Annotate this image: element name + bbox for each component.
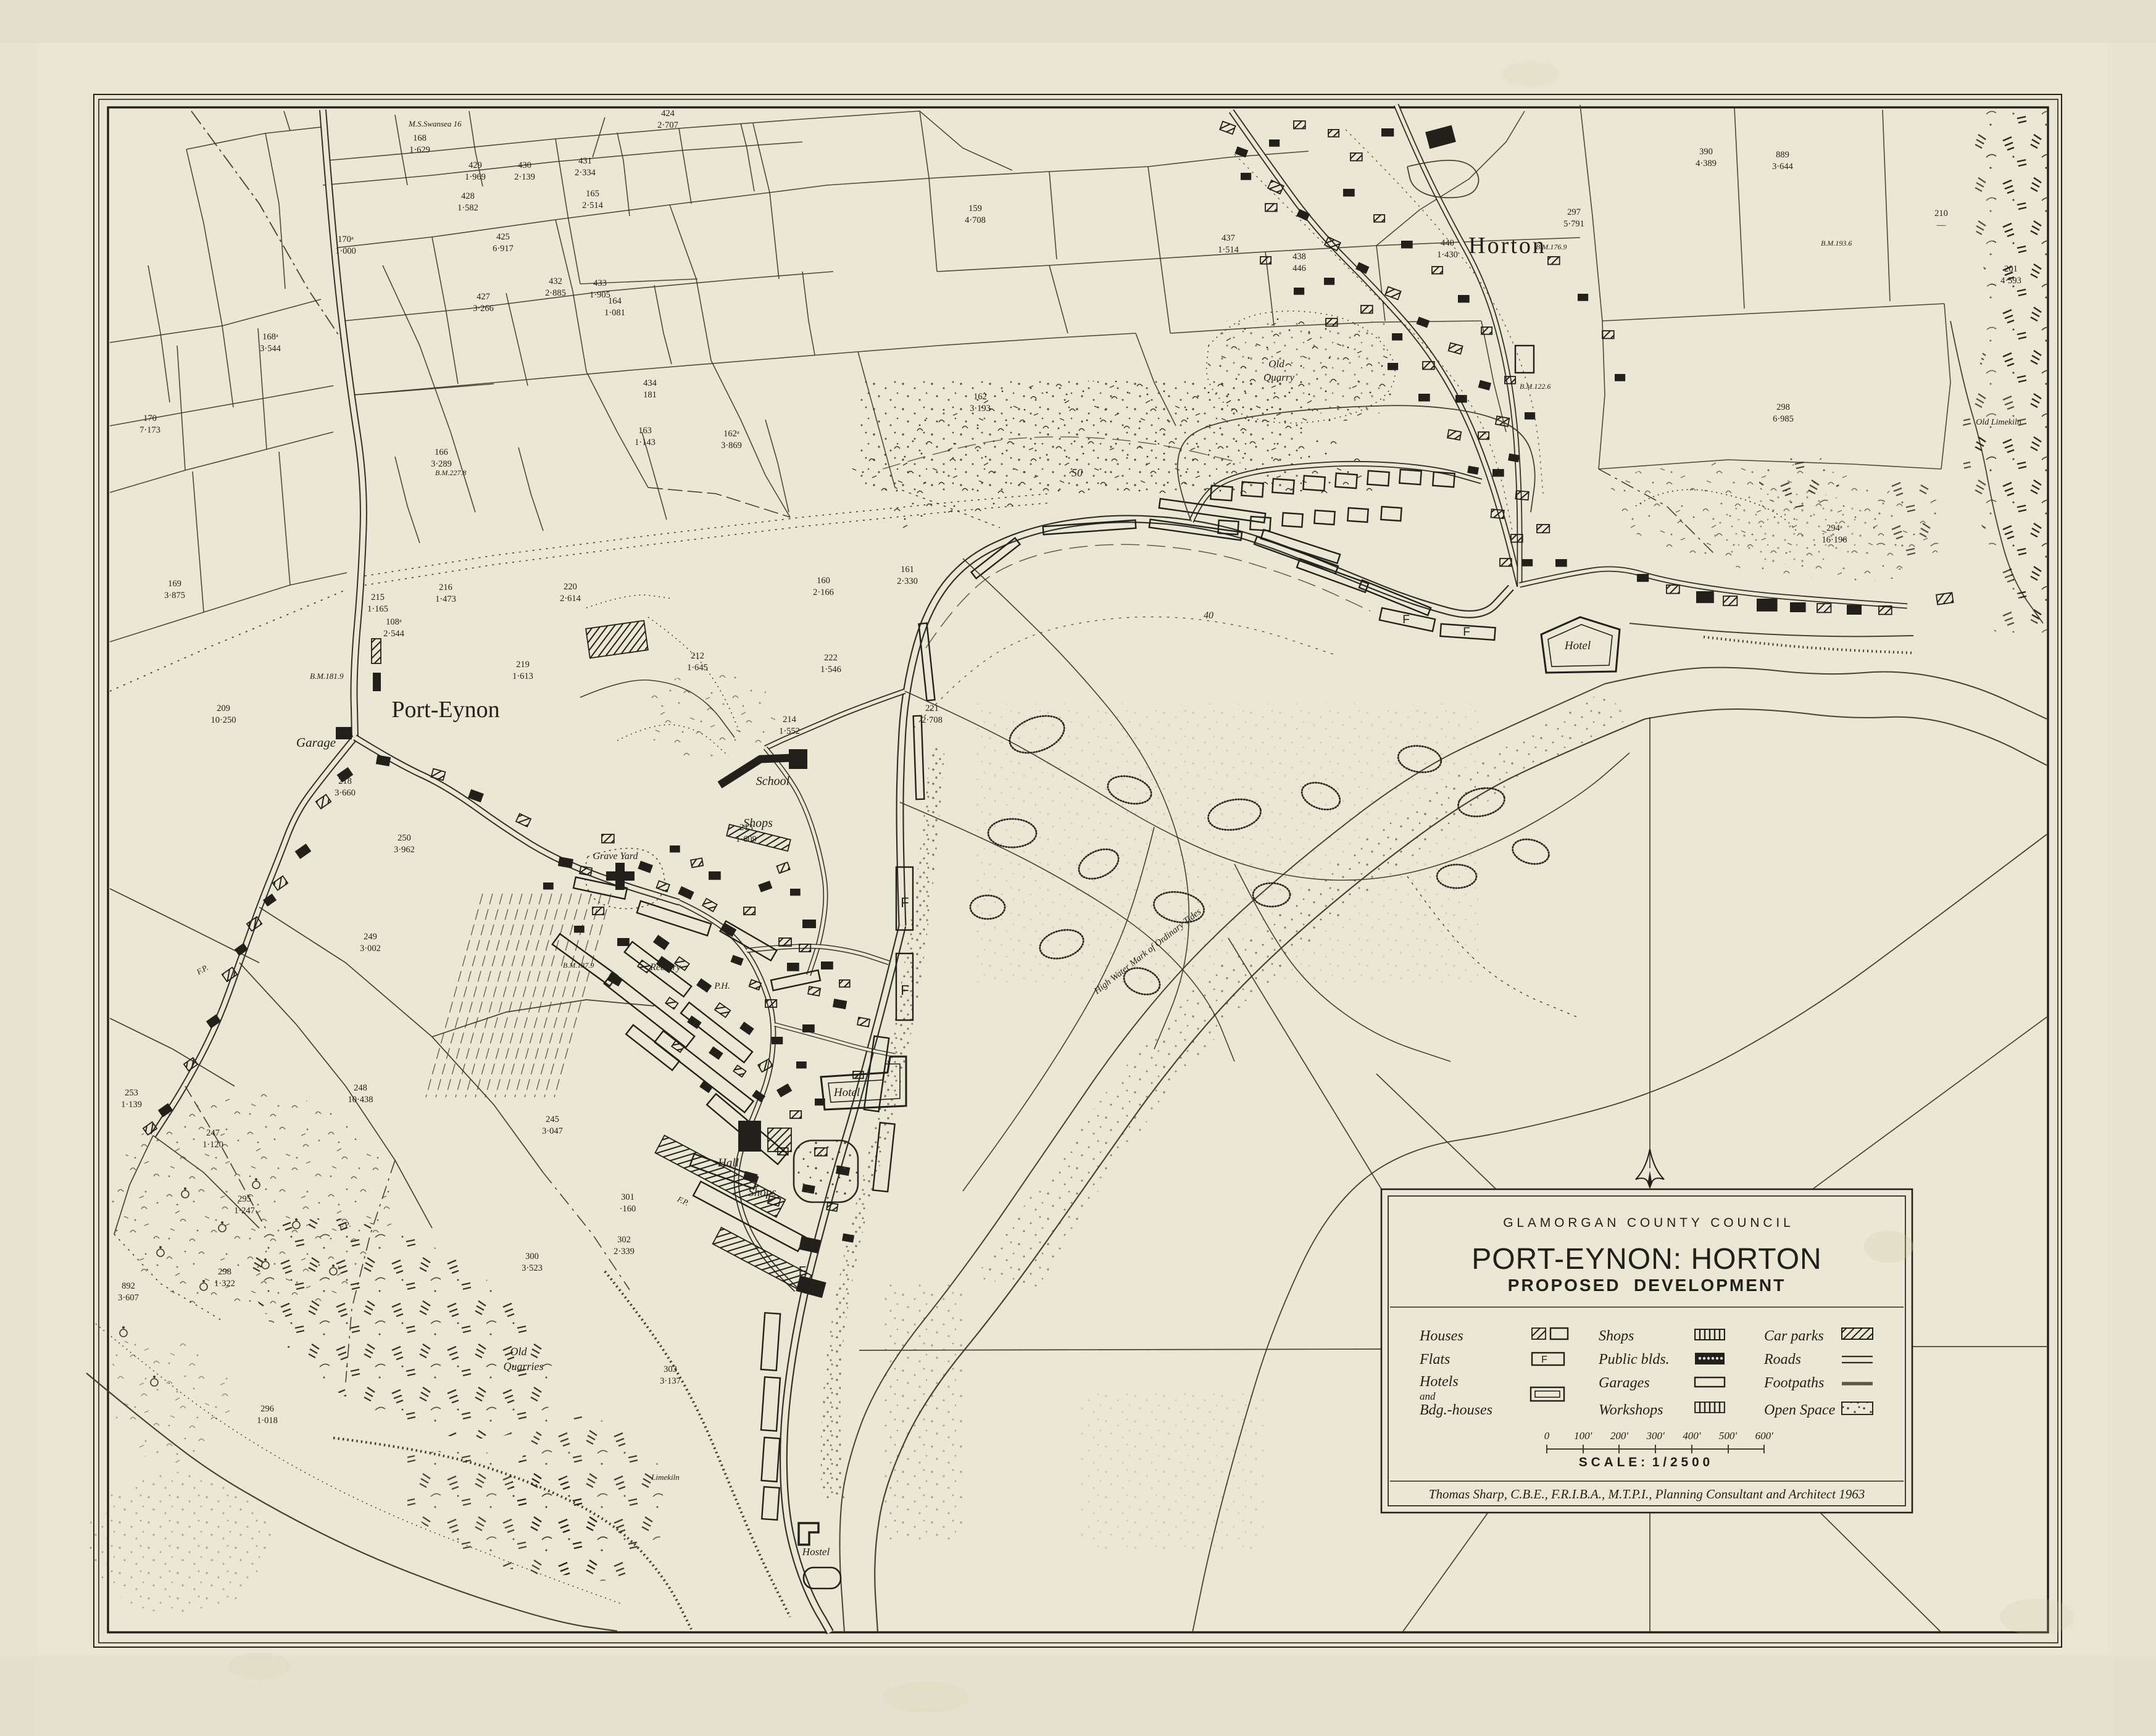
svg-text:B.M.227.8: B.M.227.8 <box>435 468 466 477</box>
svg-text:Workshops: Workshops <box>1599 1402 1663 1418</box>
svg-text:Quarry: Quarry <box>1263 372 1295 383</box>
svg-text:162: 162 <box>973 392 987 402</box>
svg-text:2·166: 2·166 <box>813 588 834 597</box>
svg-text:6·917: 6·917 <box>493 244 514 254</box>
svg-text:161: 161 <box>901 565 914 575</box>
svg-text:Car parks: Car parks <box>1764 1328 1824 1344</box>
svg-text:3·047: 3·047 <box>542 1126 563 1136</box>
svg-text:168: 168 <box>413 133 427 143</box>
svg-text:216: 216 <box>439 583 452 592</box>
svg-text:10·438: 10·438 <box>348 1095 373 1105</box>
svg-text:170ᵃ: 170ᵃ <box>338 235 354 244</box>
svg-text:3·544: 3·544 <box>260 344 281 354</box>
svg-text:F: F <box>1463 626 1470 639</box>
svg-text:1·609: 1·609 <box>736 834 757 844</box>
svg-text:424: 424 <box>661 109 675 118</box>
svg-text:Quarries: Quarries <box>503 1360 543 1373</box>
svg-text:3·266: 3·266 <box>473 304 494 314</box>
svg-text:Horton: Horton <box>1468 233 1546 259</box>
svg-text:Hotel: Hotel <box>833 1086 860 1099</box>
svg-text:P.H.: P.H. <box>714 981 730 991</box>
svg-text:2·139: 2·139 <box>514 172 535 182</box>
svg-text:2·514: 2·514 <box>582 201 604 210</box>
svg-text:Thomas Sharp, C.B.E., F.R.I.: Thomas Sharp, C.B.E., F.R.I.B.A., M.T.P.… <box>1429 1487 1865 1501</box>
svg-text:434: 434 <box>643 378 657 388</box>
svg-text:437: 437 <box>1222 233 1235 243</box>
svg-text:201: 201 <box>2004 264 2018 274</box>
svg-text:1·430: 1·430 <box>1437 250 1458 260</box>
svg-text:165: 165 <box>586 189 599 199</box>
svg-text:1·143: 1·143 <box>635 438 656 447</box>
svg-text:3·523: 3·523 <box>522 1263 543 1273</box>
svg-text:10·250: 10·250 <box>210 715 236 725</box>
svg-text:1·905: 1·905 <box>589 290 610 300</box>
svg-text:220: 220 <box>564 582 577 592</box>
svg-text:3·869: 3·869 <box>721 441 742 451</box>
svg-text:298: 298 <box>1776 402 1790 412</box>
svg-text:294ᵃ: 294ᵃ <box>1826 523 1842 533</box>
svg-text:Old Limekiln: Old Limekiln <box>1976 418 2021 427</box>
svg-text:Houses: Houses <box>1419 1328 1463 1344</box>
svg-text:390: 390 <box>1699 147 1713 157</box>
svg-text:Hotels: Hotels <box>1419 1374 1459 1390</box>
svg-text:F: F <box>901 982 909 998</box>
svg-text:301: 301 <box>621 1192 635 1202</box>
svg-text:4·708: 4·708 <box>965 215 986 225</box>
svg-text:889: 889 <box>1776 150 1789 160</box>
svg-text:F: F <box>1541 1355 1547 1365</box>
svg-text:0: 0 <box>1544 1430 1550 1442</box>
svg-text:Footpaths: Footpaths <box>1763 1375 1824 1391</box>
svg-text:B.M.176.9: B.M.176.9 <box>1536 243 1567 251</box>
svg-text:249: 249 <box>364 932 377 942</box>
svg-text:221: 221 <box>925 704 939 713</box>
svg-text:1·000: 1·000 <box>335 246 356 256</box>
svg-text:1·120: 1·120 <box>202 1140 223 1150</box>
svg-text:1·247: 1·247 <box>234 1206 255 1216</box>
svg-text:163: 163 <box>638 426 652 436</box>
svg-text:429: 429 <box>468 160 482 170</box>
svg-text:162ᵃ: 162ᵃ <box>723 429 739 439</box>
svg-text:3·607: 3·607 <box>118 1293 139 1303</box>
svg-text:296: 296 <box>260 1404 274 1414</box>
svg-text:247: 247 <box>206 1128 220 1138</box>
svg-text:222: 222 <box>824 653 838 663</box>
svg-text:1·629: 1·629 <box>409 145 430 155</box>
svg-text:B.M.122.6: B.M.122.6 <box>1520 382 1550 391</box>
svg-text:Hostel: Hostel <box>802 1546 830 1558</box>
svg-text:297: 297 <box>1567 207 1581 217</box>
svg-text:298: 298 <box>218 1267 231 1277</box>
svg-text:Port-Eynon: Port-Eynon <box>391 697 499 723</box>
svg-text:209: 209 <box>217 704 230 713</box>
svg-text:168ᵃ: 168ᵃ <box>262 332 278 342</box>
svg-text:300': 300' <box>1646 1430 1665 1442</box>
svg-text:3·660: 3·660 <box>335 788 356 798</box>
svg-text:School: School <box>756 775 790 788</box>
svg-text:160: 160 <box>817 576 830 586</box>
svg-text:431: 431 <box>578 156 592 166</box>
svg-text:M.S.Swansea 16: M.S.Swansea 16 <box>408 119 462 128</box>
svg-text:170: 170 <box>143 413 157 423</box>
svg-text:3·962: 3·962 <box>394 845 415 855</box>
svg-text:169: 169 <box>168 579 181 589</box>
svg-text:248: 248 <box>354 1083 367 1093</box>
svg-text:B.M.137.9: B.M.137.9 <box>563 961 594 970</box>
svg-text:2·707: 2·707 <box>657 120 678 130</box>
svg-text:3·002: 3·002 <box>360 944 381 953</box>
svg-text:PORT-EYNON: HORTON: PORT-EYNON: HORTON <box>1471 1243 1821 1276</box>
svg-text:1·969: 1·969 <box>465 172 486 182</box>
svg-text:Flats: Flats <box>1419 1352 1450 1368</box>
svg-text:433: 433 <box>593 278 607 288</box>
svg-text:2·334: 2·334 <box>575 168 596 178</box>
svg-text:430: 430 <box>518 160 531 170</box>
svg-text:G L A M O R G A N C O U N T: G L A M O R G A N C O U N T Y C O U N C … <box>1503 1216 1791 1230</box>
svg-text:215: 215 <box>371 592 385 602</box>
svg-text:F: F <box>901 895 909 910</box>
svg-text:1·322: 1·322 <box>214 1279 235 1289</box>
svg-text:3·289: 3·289 <box>431 459 452 469</box>
svg-text:PROPOSED DEVELOPMENT: PROPOSED DEVELOPMENT <box>1508 1276 1786 1295</box>
svg-text:100': 100' <box>1574 1430 1592 1442</box>
svg-text:108ᵃ: 108ᵃ <box>386 617 402 627</box>
svg-text:1·645: 1·645 <box>687 663 708 673</box>
svg-text:4·389: 4·389 <box>1696 159 1717 168</box>
svg-text:250: 250 <box>397 833 411 843</box>
svg-text:and: and <box>1420 1390 1436 1402</box>
svg-text:428: 428 <box>461 191 475 201</box>
svg-text:F: F <box>799 1265 806 1278</box>
svg-text:3·137: 3·137 <box>660 1376 681 1386</box>
svg-text:432: 432 <box>549 276 562 286</box>
svg-text:440: 440 <box>1441 238 1454 248</box>
svg-text:427: 427 <box>477 292 490 302</box>
svg-text:1·473: 1·473 <box>435 594 456 604</box>
svg-text:214: 214 <box>783 715 797 725</box>
svg-text:2·708: 2·708 <box>922 715 943 725</box>
svg-text:Grave Yard: Grave Yard <box>593 851 638 862</box>
svg-text:Roads: Roads <box>1763 1352 1801 1368</box>
svg-text:Shops: Shops <box>1599 1328 1634 1344</box>
svg-text:1·582: 1·582 <box>457 203 478 213</box>
svg-text:446: 446 <box>1292 264 1306 273</box>
svg-text:1·552: 1·552 <box>779 726 800 736</box>
svg-text:212: 212 <box>691 651 704 661</box>
svg-text:Limekiln: Limekiln <box>651 1472 680 1482</box>
svg-text:159: 159 <box>968 204 982 214</box>
svg-text:1·546: 1·546 <box>820 665 841 675</box>
svg-text:Public blds.: Public blds. <box>1598 1352 1670 1368</box>
svg-text:1·081: 1·081 <box>604 308 625 318</box>
svg-text:Garage: Garage <box>296 735 336 750</box>
svg-text:Old: Old <box>1268 358 1284 370</box>
svg-text:Garages: Garages <box>1599 1375 1650 1391</box>
svg-text:300: 300 <box>525 1252 539 1261</box>
svg-text:425: 425 <box>496 232 510 242</box>
svg-text:3·875: 3·875 <box>164 591 185 600</box>
svg-text:·160: ·160 <box>620 1204 636 1214</box>
svg-text:219: 219 <box>516 660 530 670</box>
svg-text:600': 600' <box>1755 1430 1774 1442</box>
svg-text:1·514: 1·514 <box>1218 245 1239 255</box>
svg-text:F: F <box>1402 613 1410 626</box>
svg-text:S C A L E : 1 / 2 5 0 0: S C A L E : 1 / 2 5 0 0 <box>1579 1455 1710 1469</box>
svg-text:Shops: Shops <box>748 1186 776 1199</box>
svg-text:166: 166 <box>435 447 448 457</box>
svg-text:16·196: 16·196 <box>1821 535 1847 545</box>
svg-text:303: 303 <box>664 1364 677 1374</box>
svg-text:210: 210 <box>1934 209 1948 218</box>
svg-text:2·614: 2·614 <box>560 594 581 604</box>
svg-text:40: 40 <box>1204 610 1213 621</box>
svg-text:500': 500' <box>1719 1430 1738 1442</box>
svg-text:6·985: 6·985 <box>1773 414 1794 424</box>
svg-text:1·139: 1·139 <box>121 1100 142 1110</box>
svg-text:50: 50 <box>1072 467 1083 479</box>
svg-text:2·330: 2·330 <box>897 576 918 586</box>
svg-text:Old: Old <box>510 1345 528 1358</box>
svg-text:B.M.193.6: B.M.193.6 <box>1821 239 1852 247</box>
svg-text:200': 200' <box>1610 1430 1629 1442</box>
svg-text:2·339: 2·339 <box>614 1247 635 1256</box>
svg-text:892: 892 <box>122 1281 135 1291</box>
svg-text:3·193: 3·193 <box>970 404 991 413</box>
svg-text:3·644: 3·644 <box>1772 162 1794 172</box>
svg-text:Bdg.-houses: Bdg.-houses <box>1420 1402 1492 1418</box>
svg-text:181: 181 <box>643 390 657 400</box>
svg-text:5·791: 5·791 <box>1563 219 1584 229</box>
svg-text:253: 253 <box>125 1088 138 1098</box>
svg-text:—: — <box>1936 220 1946 230</box>
svg-text:4·593: 4·593 <box>2000 276 2021 286</box>
svg-text:438: 438 <box>1292 252 1306 262</box>
svg-text:218: 218 <box>338 776 352 786</box>
svg-text:Open Space: Open Space <box>1764 1402 1836 1418</box>
svg-text:7·173: 7·173 <box>139 425 160 435</box>
svg-text:2·544: 2·544 <box>383 629 405 639</box>
svg-text:2·885: 2·885 <box>545 288 566 298</box>
svg-text:1·165: 1·165 <box>367 604 388 614</box>
svg-text:Rectory: Rectory <box>649 962 681 973</box>
svg-text:Hall: Hall <box>717 1157 739 1169</box>
svg-text:Hotel: Hotel <box>1564 639 1591 652</box>
svg-text:245: 245 <box>546 1115 559 1124</box>
svg-text:400': 400' <box>1683 1430 1701 1442</box>
svg-text:213: 213 <box>739 823 753 833</box>
svg-text:1·613: 1·613 <box>512 671 533 681</box>
svg-text:1·018: 1·018 <box>257 1416 278 1426</box>
svg-text:302: 302 <box>617 1235 631 1245</box>
svg-text:295: 295 <box>238 1194 251 1204</box>
svg-text:B.M.181.9: B.M.181.9 <box>310 671 344 681</box>
